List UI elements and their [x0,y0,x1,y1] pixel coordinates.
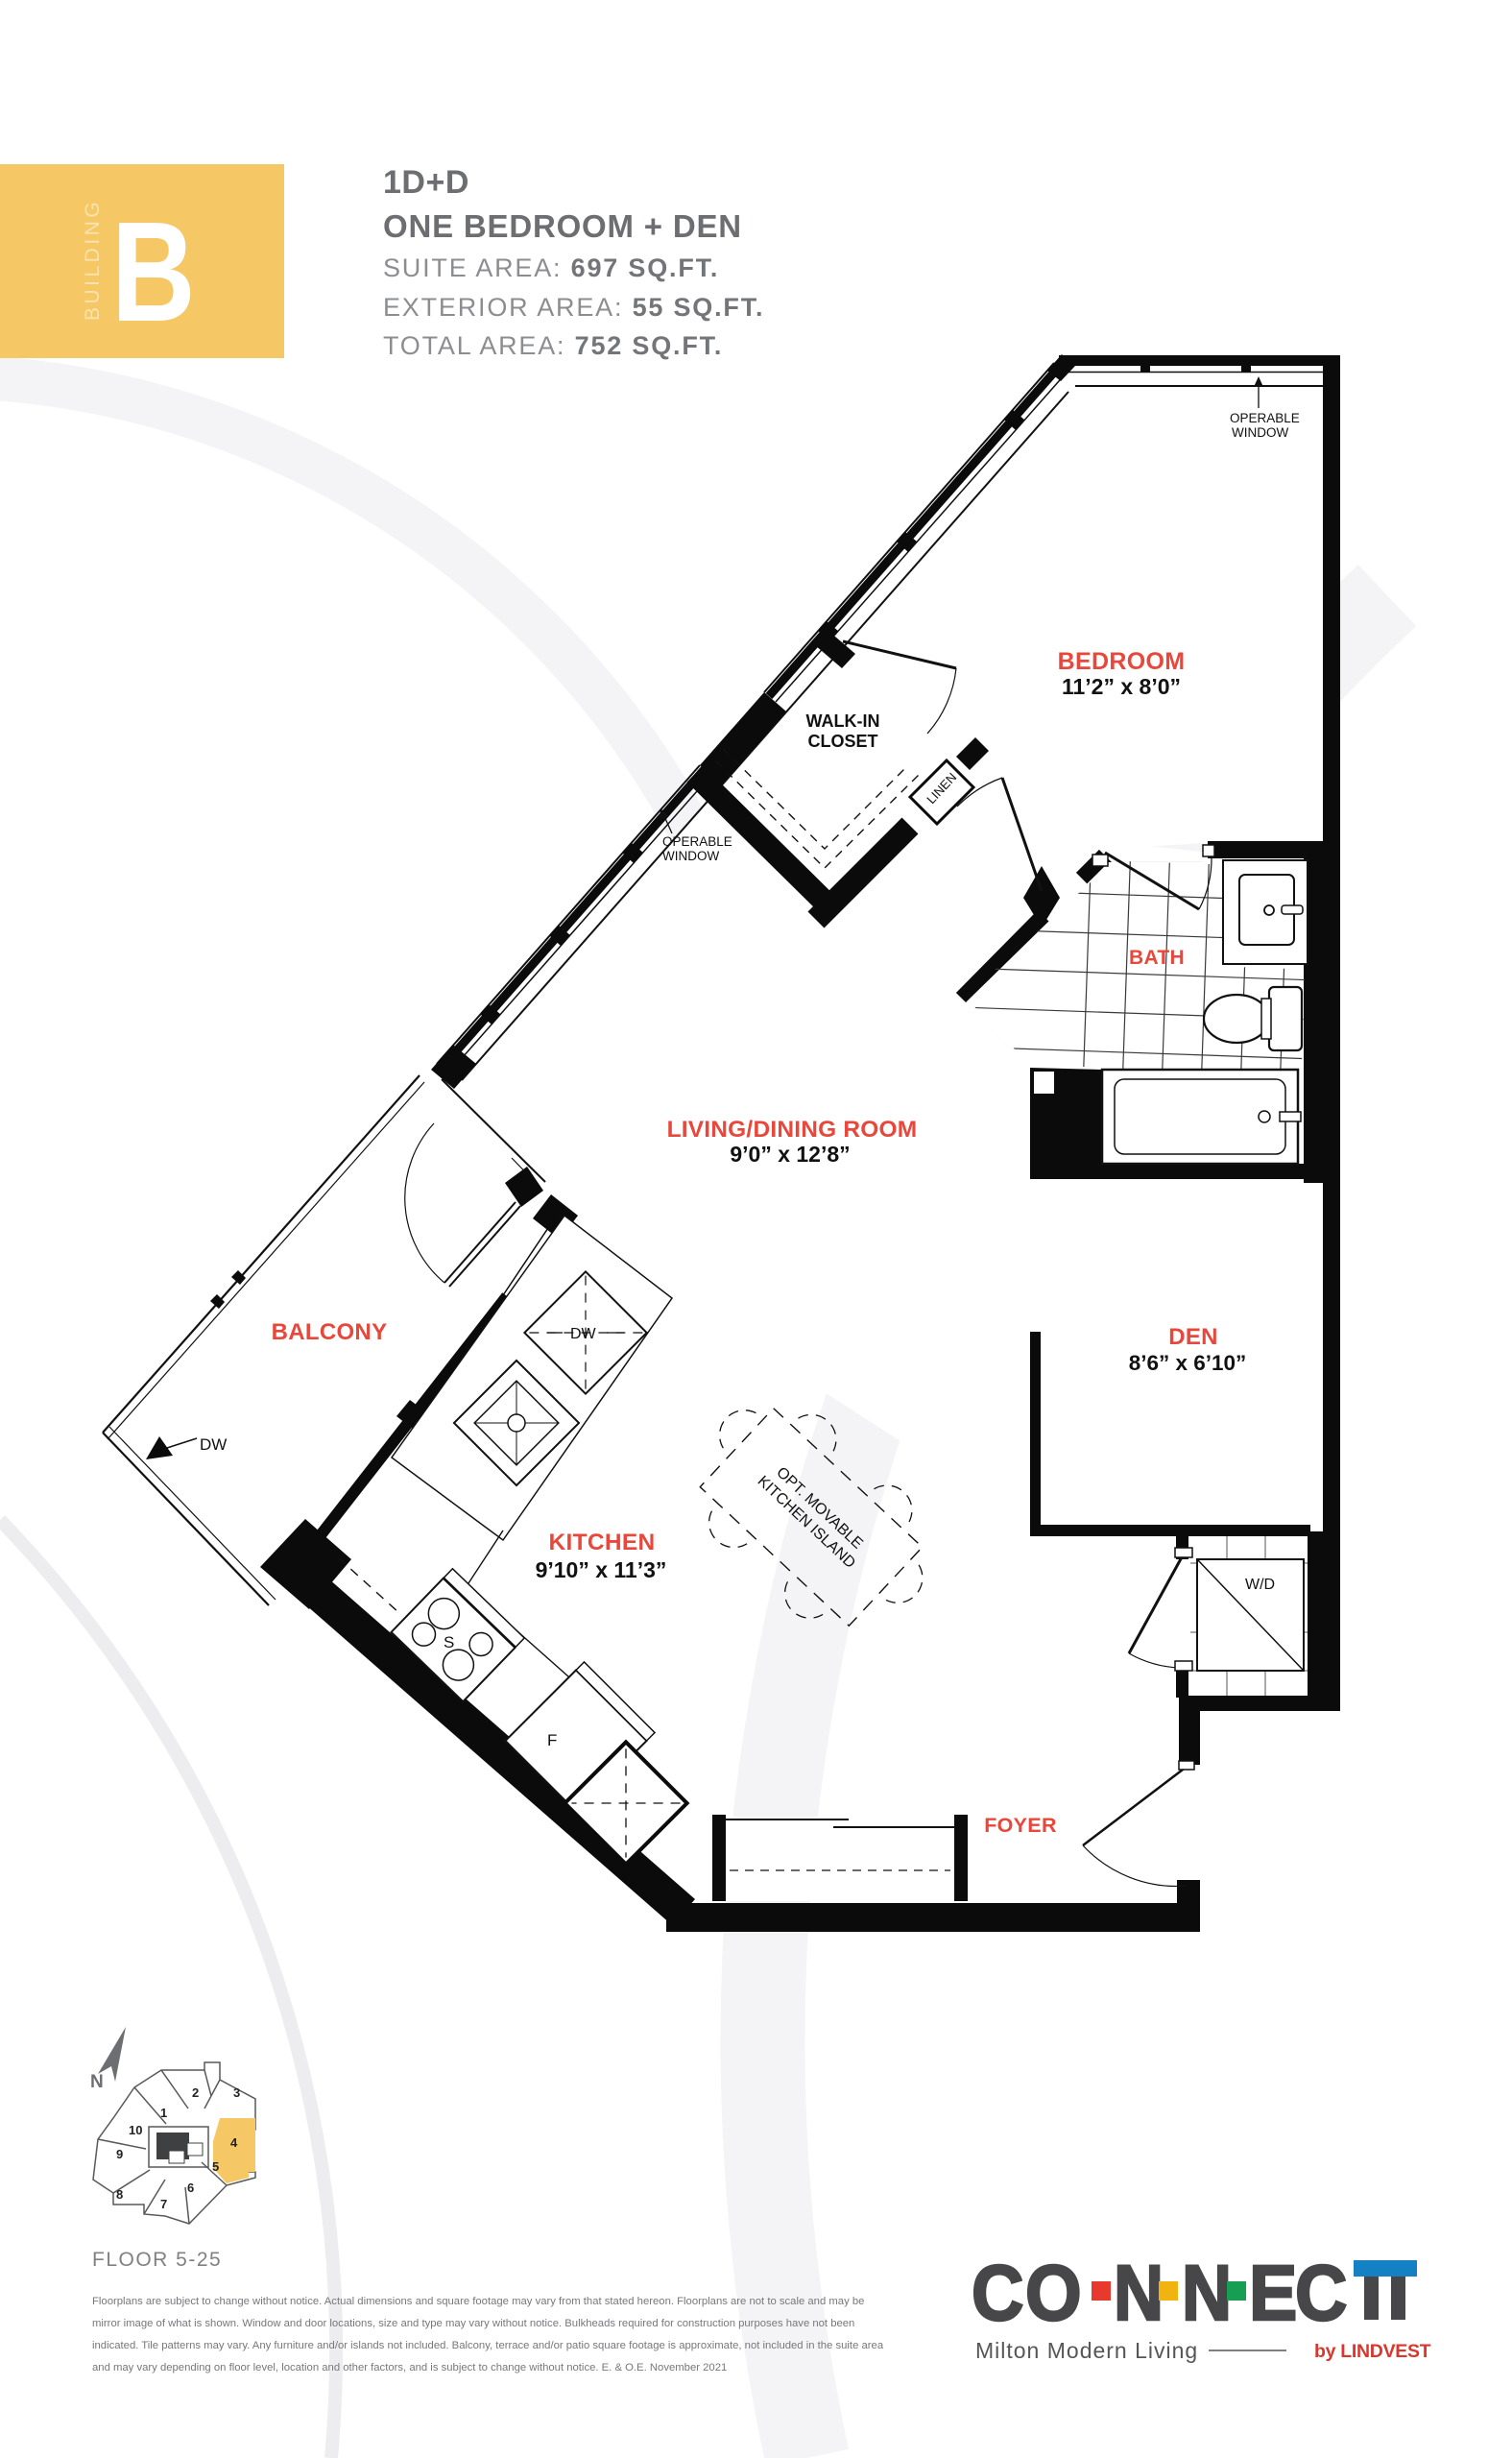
svg-text:EXTERIOR AREA: 55 SQ.FT.: EXTERIOR AREA: 55 SQ.FT. [383,293,764,322]
svg-text:BALCONY: BALCONY [272,1319,388,1345]
svg-text:1: 1 [160,2106,167,2120]
svg-text:4: 4 [230,2135,238,2150]
svg-text:S: S [444,1633,454,1651]
svg-text:C: C [972,2249,1023,2337]
svg-text:SUITE AREA: 697 SQ.FT.: SUITE AREA: 697 SQ.FT. [383,253,719,282]
svg-text:WALK-IN: WALK-IN [806,711,880,731]
svg-text:DW: DW [200,1435,227,1454]
svg-text:1D+D: 1D+D [383,164,469,201]
svg-text:mirror image of what is shown.: mirror image of what is shown. Window an… [92,2318,854,2329]
svg-text:E: E [1249,2249,1297,2337]
svg-text:WINDOW: WINDOW [662,849,719,863]
svg-text:10: 10 [129,2123,142,2137]
svg-text:9’10” x 11’3”: 9’10” x 11’3” [536,1557,667,1582]
svg-text:9: 9 [116,2147,123,2161]
svg-text:WINDOW: WINDOW [1232,425,1288,440]
svg-text:BUILDING: BUILDING [82,199,104,321]
svg-text:2: 2 [192,2085,199,2100]
svg-text:OPERABLE: OPERABLE [662,834,732,849]
svg-text:8’6” x 6’10”: 8’6” x 6’10” [1129,1351,1247,1375]
svg-text:and may vary depending on floo: and may vary depending on floor level, l… [92,2362,727,2374]
svg-text:7: 7 [160,2197,167,2211]
svg-text:BATH: BATH [1129,947,1185,969]
svg-text:11’2” x 8’0”: 11’2” x 8’0” [1062,674,1181,699]
svg-text:6: 6 [187,2181,194,2195]
svg-text:Milton Modern Living: Milton Modern Living [975,2338,1198,2363]
svg-text:FOYER: FOYER [984,1814,1057,1837]
svg-text:3: 3 [233,2085,240,2100]
svg-text:8: 8 [116,2187,123,2202]
svg-text:LIVING/DINING ROOM: LIVING/DINING ROOM [667,1117,918,1143]
svg-text:DW: DW [570,1326,597,1342]
svg-text:FLOOR 5-25: FLOOR 5-25 [92,2249,222,2271]
svg-text:ONE BEDROOM + DEN: ONE BEDROOM + DEN [383,208,742,244]
svg-text:KITCHEN: KITCHEN [549,1530,656,1555]
svg-text:O: O [1025,2249,1082,2337]
svg-text:C: C [1295,2249,1347,2337]
svg-text:F: F [547,1731,557,1749]
svg-text:DEN: DEN [1168,1324,1218,1350]
svg-text:CLOSET: CLOSET [807,732,877,751]
svg-text:5: 5 [212,2159,219,2174]
svg-text:Floorplans are subject to chan: Floorplans are subject to change without… [92,2296,864,2307]
svg-text:N: N [1182,2250,1232,2337]
svg-text:TOTAL AREA: 752 SQ.FT.: TOTAL AREA: 752 SQ.FT. [383,331,723,360]
svg-text:N: N [1114,2250,1164,2337]
svg-text:B: B [111,191,196,350]
svg-text:by LINDVEST: by LINDVEST [1314,2341,1431,2362]
svg-text:N: N [90,2072,104,2092]
svg-text:OPERABLE: OPERABLE [1230,411,1300,425]
svg-text:9’0” x 12’8”: 9’0” x 12’8” [730,1142,850,1167]
svg-text:indicated. Tile patterns may v: indicated. Tile patterns may vary. Any f… [92,2340,884,2351]
svg-text:W/D: W/D [1245,1577,1275,1593]
svg-text:BEDROOM: BEDROOM [1058,648,1186,675]
